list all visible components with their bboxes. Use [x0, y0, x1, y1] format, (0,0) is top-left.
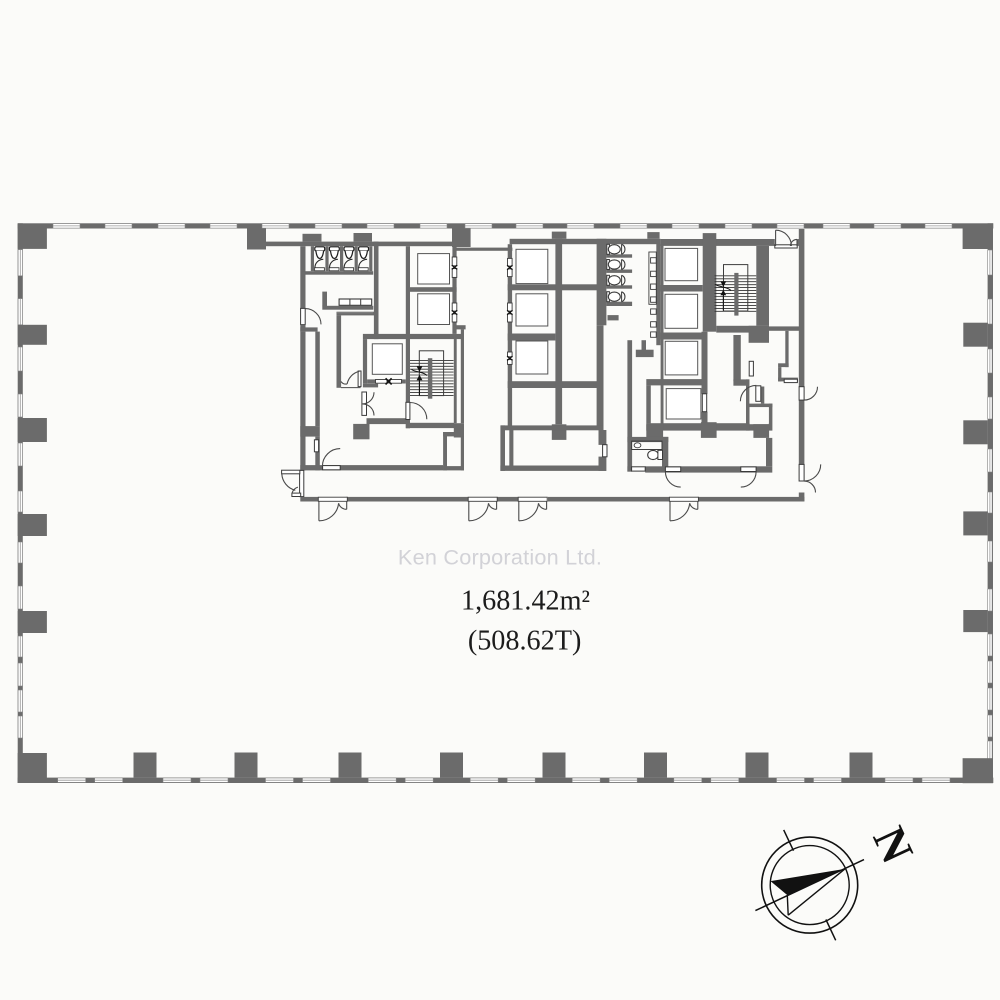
svg-text:Ken Corporation Ltd.: Ken Corporation Ltd.: [398, 545, 602, 570]
svg-text:(508.62T): (508.62T): [468, 626, 582, 657]
svg-text:1,681.42m²: 1,681.42m²: [461, 586, 590, 617]
